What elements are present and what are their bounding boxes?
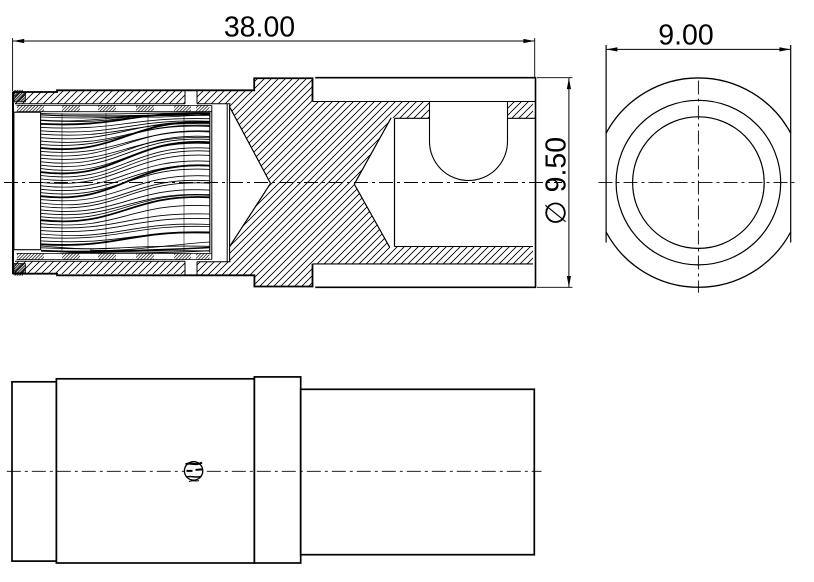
svg-text:38.00: 38.00 — [224, 12, 295, 44]
svg-text:∅ 9.50: ∅ 9.50 — [541, 137, 573, 225]
svg-text:9.00: 9.00 — [658, 20, 713, 52]
